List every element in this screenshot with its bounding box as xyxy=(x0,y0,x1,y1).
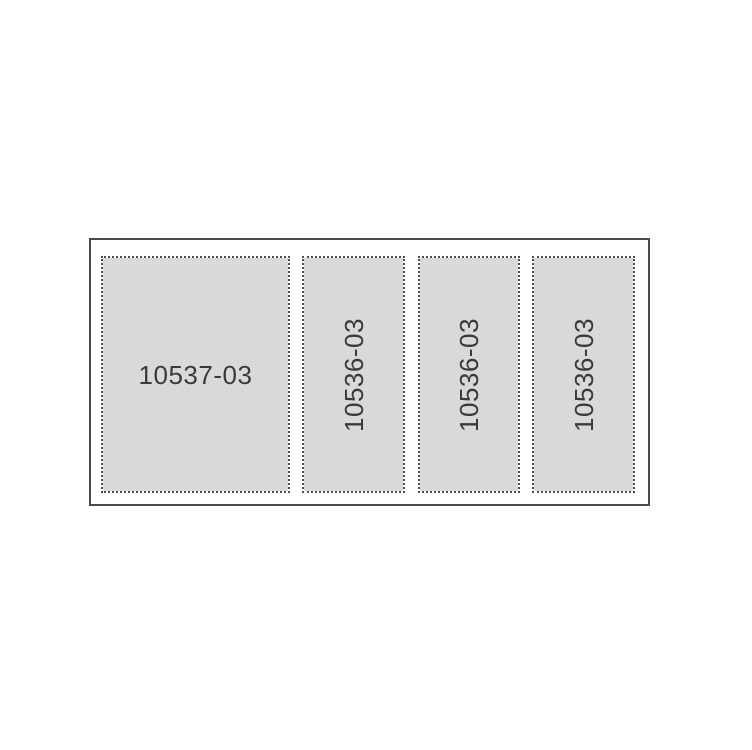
label-sheet-outline: 10537-03 10536-03 10536-03 10536-03 xyxy=(89,238,650,506)
part-number-label: 10536-03 xyxy=(571,318,597,432)
page-background: 10537-03 10536-03 10536-03 10536-03 xyxy=(0,0,752,750)
panel-10536-03-first: 10536-03 xyxy=(302,256,405,493)
part-number-label: 10536-03 xyxy=(456,318,482,432)
panel-10537-03: 10537-03 xyxy=(101,256,290,493)
panel-10536-03-third: 10536-03 xyxy=(532,256,635,493)
part-number-label: 10537-03 xyxy=(139,362,253,388)
panel-10536-03-second: 10536-03 xyxy=(418,256,520,493)
part-number-label: 10536-03 xyxy=(341,318,367,432)
